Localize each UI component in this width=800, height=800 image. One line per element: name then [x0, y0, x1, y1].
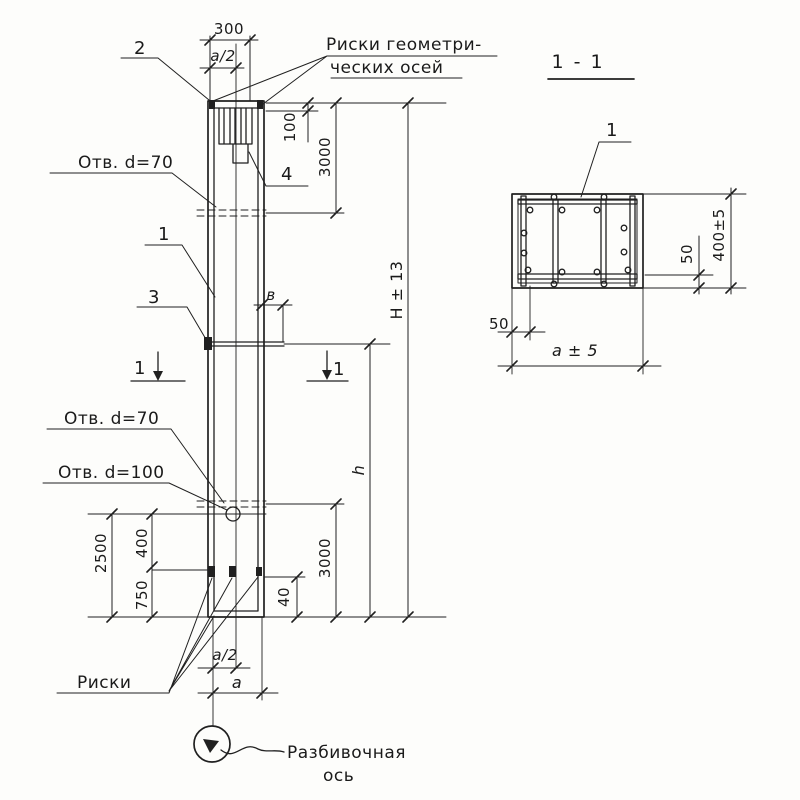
- layout-axis-note-line2: ось: [323, 766, 354, 786]
- layout-axis-arrow: [203, 739, 219, 753]
- cut-left-arrowhead: [153, 371, 163, 381]
- column-drawing: 300 a/2 100 3000 H ± 13 h 3000 в 2500 40…: [0, 0, 800, 800]
- mark-extension-lines: [152, 570, 305, 577]
- dim-hole100-bottom: 2500: [92, 533, 110, 573]
- mark-2-leader: [121, 58, 209, 100]
- axes-note-line2: ческих осей: [330, 58, 443, 78]
- section-top-bar: [518, 200, 637, 204]
- dim-top-half-width: a/2: [210, 47, 235, 65]
- cut-right-number: 1: [333, 359, 345, 380]
- section-bar-mid-right: [601, 200, 606, 283]
- dim-edge-mark-offset: 40: [275, 587, 293, 607]
- main-elevation-view: 300 a/2 100 3000 H ± 13 h 3000 в 2500 40…: [43, 20, 497, 786]
- dim-top-width: 300: [214, 20, 244, 38]
- bottom-mark-left: [208, 566, 215, 577]
- section-mark-1-label: 1: [606, 120, 618, 141]
- mark-3-label: 3: [148, 287, 160, 308]
- section-bar-left: [521, 196, 526, 286]
- section-view-1-1: 1 - 1 1 400±5 50 50 a ± 5: [489, 51, 746, 374]
- hole-low-leader: [43, 483, 227, 510]
- axis-mark-top-right: [257, 100, 263, 109]
- section-bar-right: [630, 196, 635, 286]
- marks-note-label: Риски: [77, 673, 131, 693]
- dim-total-height: H ± 13: [387, 261, 406, 320]
- mark-2-label: 2: [134, 38, 146, 59]
- axes-note-line1: Риски геометри-: [326, 35, 482, 55]
- section-dim-height: 400±5: [710, 208, 728, 261]
- section-cut-left: 1: [131, 352, 185, 381]
- dim-top-hole-offset: 3000: [316, 137, 334, 177]
- dim-head-depth: 100: [281, 112, 299, 142]
- section-rebar-dots: [521, 194, 631, 287]
- dim-bottom-width: a: [232, 673, 242, 692]
- section-inner-rect: [518, 199, 637, 283]
- bottom-mark-right: [256, 567, 262, 576]
- dim-lower-height: h: [349, 465, 368, 476]
- below-column-verticals: [213, 617, 262, 726]
- section-bar-mid-left: [553, 200, 558, 283]
- drawing-sheet: 300 a/2 100 3000 H ± 13 h 3000 в 2500 40…: [0, 0, 800, 800]
- section-cut-right: 1: [307, 351, 348, 381]
- hole-mid-label: Отв. d=70: [64, 409, 159, 429]
- bottom-mark-center: [229, 566, 236, 577]
- cut-right-arrowhead: [322, 370, 332, 380]
- joint-mark-square: [204, 337, 212, 350]
- head-slot-comb: [219, 108, 252, 163]
- section-title: 1 - 1: [551, 51, 604, 73]
- dim-mark-to-bottom: 750: [133, 580, 151, 610]
- dim-joint-offset-b: в: [266, 286, 275, 304]
- hole-low-label: Отв. d=100: [58, 463, 165, 483]
- dim-bottom-half-width: a/2: [212, 646, 237, 664]
- section-mark-1-leader: [581, 142, 631, 197]
- section-dim-cover-bottom: 50: [678, 244, 696, 264]
- cut-left-number: 1: [134, 358, 146, 379]
- dim-hole70-bottom: 3000: [316, 538, 334, 578]
- hole-top-label: Отв. d=70: [78, 153, 173, 173]
- section-bottom-bar: [518, 274, 637, 279]
- dim-hole-to-mark: 400: [133, 528, 151, 558]
- mark-4-label: 4: [281, 164, 293, 185]
- hole-top-leader: [50, 173, 216, 207]
- mark-1-label: 1: [158, 224, 170, 245]
- section-dim-ticks: [507, 189, 736, 371]
- section-dim-cover-left: 50: [489, 315, 509, 333]
- layout-axis-note-line1: Разбивочная: [287, 743, 406, 763]
- right-extension-lines: [266, 103, 446, 111]
- section-dim-width: a ± 5: [552, 341, 598, 360]
- joint-line: [208, 342, 284, 346]
- b-dim-line: [254, 305, 292, 342]
- mark-3-leader: [137, 307, 207, 341]
